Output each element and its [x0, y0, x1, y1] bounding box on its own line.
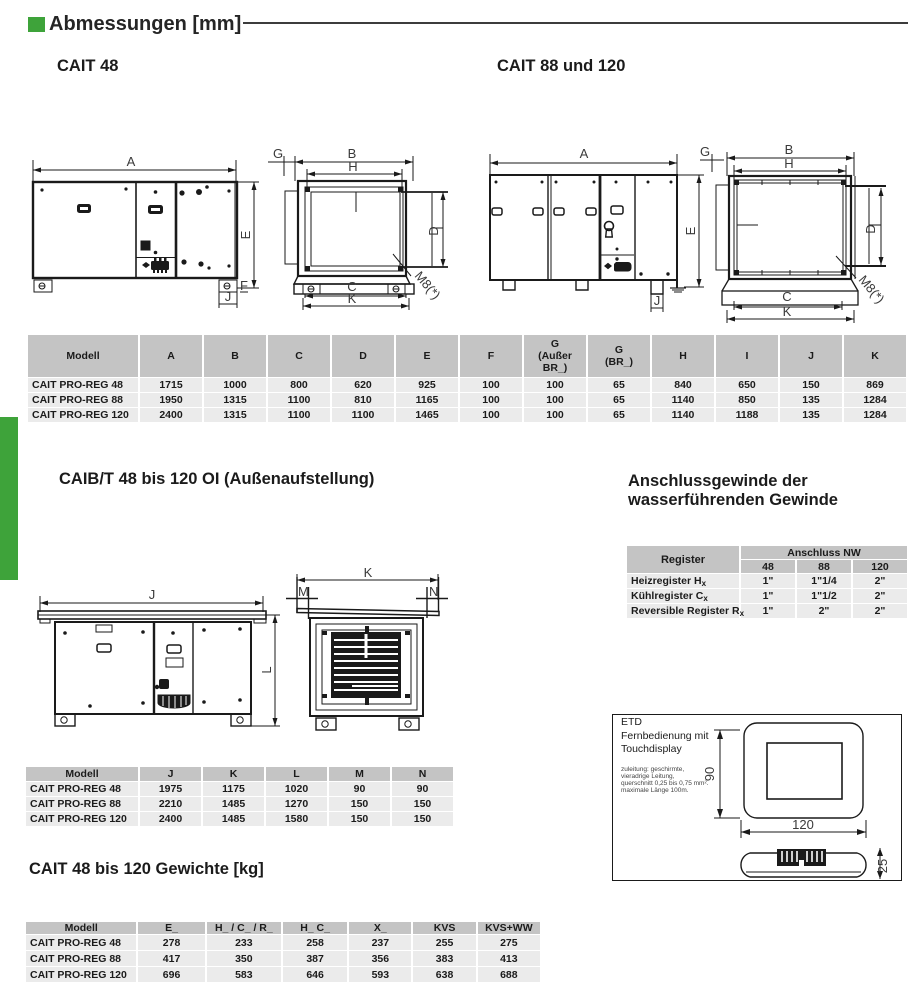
- svg-text:120: 120: [792, 817, 814, 832]
- svg-text:90: 90: [702, 767, 717, 781]
- svg-text:25: 25: [875, 859, 890, 873]
